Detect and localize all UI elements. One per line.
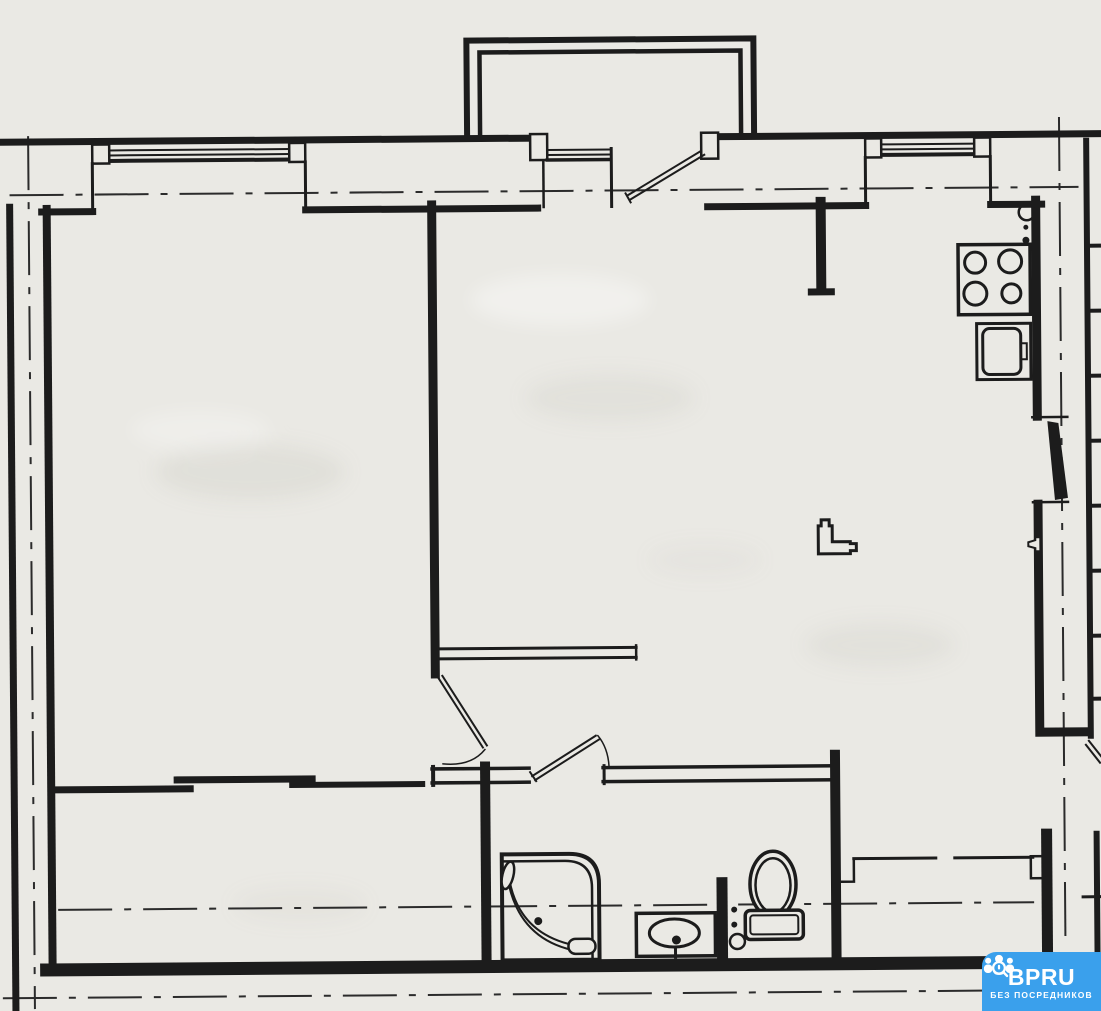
people-search-icon <box>982 952 1016 978</box>
interior-door-bathroom <box>530 736 609 782</box>
left-room-closet-partitions <box>55 778 422 790</box>
hall-kitchen-stub-wall <box>811 202 832 292</box>
pipe-riser-icon <box>730 906 745 949</box>
entrance-door-with-transom <box>530 133 719 207</box>
kitchen-sink-icon <box>977 323 1031 379</box>
scanned-floorplan-page: BPRU БЕЗ ПОСРЕДНИКОВ <box>0 0 1101 1011</box>
left-party-wall <box>10 207 16 1011</box>
demolished-wall-thin-line <box>854 857 1033 858</box>
service-hatch-right-wall <box>1032 417 1068 502</box>
floor-plan-drawing <box>0 0 1101 1011</box>
entrance-door-leaf <box>625 151 704 203</box>
hatch-door-leaf <box>1047 421 1068 500</box>
corridor-partition <box>439 645 636 661</box>
bpru-watermark: BPRU БЕЗ ПОСРЕДНИКОВ <box>982 952 1101 1011</box>
outer-walls <box>0 134 1101 1011</box>
interior-wall-left-room <box>432 205 436 674</box>
neighbor-door-swing <box>1086 741 1101 763</box>
window-top-left <box>92 143 305 209</box>
washbasin-icon <box>636 913 715 958</box>
watermark-tagline: БЕЗ ПОСРЕДНИКОВ <box>990 990 1092 1000</box>
stove-4-burner-icon <box>958 244 1031 315</box>
watermark-brand: BPRU <box>1008 966 1075 989</box>
interior-door-left-room <box>438 676 487 765</box>
entrance-porch <box>466 38 754 138</box>
bottom-wall <box>47 962 1101 970</box>
window-top-right <box>865 138 990 203</box>
toilet-partition <box>722 883 723 959</box>
vent-elbow-icon <box>818 520 856 554</box>
toilet-icon <box>745 851 804 939</box>
axis-centerlines <box>0 118 1101 1009</box>
